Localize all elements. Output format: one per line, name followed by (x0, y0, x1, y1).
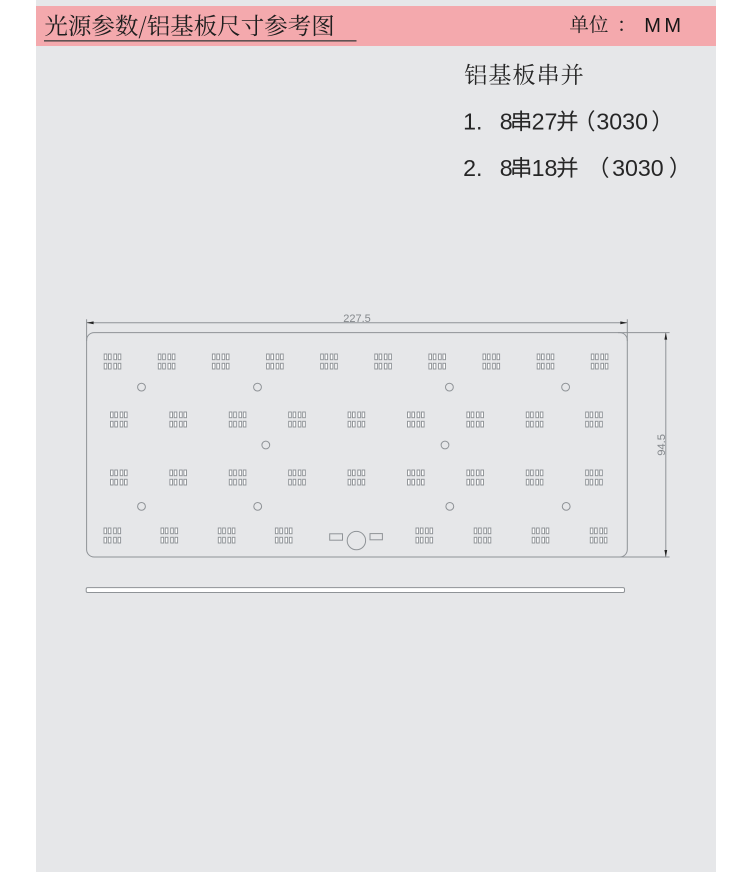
svg-text:8: 8 (500, 155, 513, 181)
svg-text:8: 8 (500, 108, 513, 134)
svg-text:MM: MM (644, 15, 684, 37)
svg-text:27: 27 (532, 108, 558, 134)
svg-text:18: 18 (532, 155, 558, 181)
svg-text:2.: 2. (463, 155, 482, 181)
svg-text:94.5: 94.5 (656, 434, 668, 456)
svg-text:3030: 3030 (596, 108, 648, 134)
svg-text:3030: 3030 (612, 155, 664, 181)
svg-text:1.: 1. (463, 108, 482, 134)
svg-text:227.5: 227.5 (343, 313, 371, 325)
